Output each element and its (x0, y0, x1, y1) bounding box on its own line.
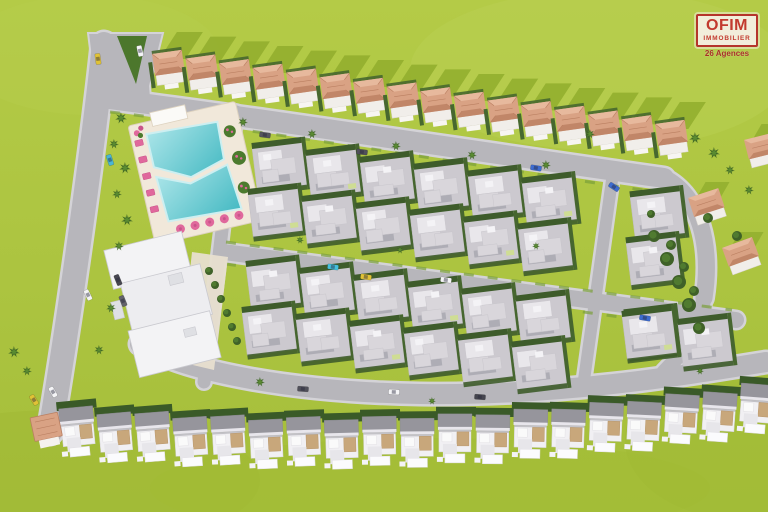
patio (257, 459, 277, 469)
roof-terrace (325, 205, 334, 212)
middle-villa-lot (511, 335, 571, 394)
shutter-panel (381, 434, 393, 448)
villa-roof (655, 213, 674, 227)
window (593, 421, 603, 430)
shutter-panel (306, 434, 319, 448)
villa-roof (379, 297, 398, 311)
villa-roof (252, 333, 269, 347)
planter (287, 460, 293, 465)
middle-villa-lot (409, 203, 469, 262)
roof-terrace (485, 181, 494, 188)
window (480, 434, 490, 443)
villa-roof (691, 346, 712, 358)
patio (670, 434, 690, 444)
villa-roof (262, 169, 279, 183)
villa-roof (315, 223, 336, 235)
planter (437, 457, 443, 462)
car-windshield (263, 133, 267, 137)
roof-terrace (473, 299, 482, 306)
window (555, 428, 565, 437)
shutter-panel (155, 429, 168, 444)
patio (295, 457, 315, 467)
villa-shadow (439, 430, 471, 432)
villa-roof (541, 318, 560, 332)
roof-terrace (415, 338, 424, 345)
villa-roof (493, 193, 512, 207)
logo-box: OFIM IMMOBILIER (696, 14, 758, 47)
garden-accent (348, 183, 357, 189)
shutter-panel (419, 436, 431, 450)
planter (324, 463, 330, 468)
window (366, 435, 376, 444)
tree (648, 230, 660, 242)
middle-villa-lot (403, 321, 463, 380)
car (388, 389, 399, 395)
roof-terrace (639, 321, 648, 328)
roof-terrace (323, 160, 332, 167)
villa-roof (438, 414, 472, 429)
roof-terrace (263, 154, 272, 161)
shutter-panel (532, 427, 544, 441)
window (64, 427, 75, 437)
tree (672, 275, 686, 289)
window (140, 432, 151, 442)
roof-terrace (265, 199, 274, 206)
logo-brand-text: OFIM (699, 18, 755, 34)
villa-roof (373, 184, 394, 196)
roof-terrace (529, 234, 538, 241)
planter (512, 452, 518, 457)
car-windshield (331, 265, 335, 269)
tree (228, 323, 236, 331)
shutter-panel (495, 433, 507, 447)
planter (137, 456, 143, 461)
roof-terrace (649, 247, 658, 254)
shutter-panel (607, 421, 620, 435)
roof-terrace (533, 306, 542, 313)
garden-accent (564, 211, 573, 217)
tree (679, 262, 689, 272)
tree (666, 240, 676, 250)
tree (703, 213, 713, 223)
window (329, 439, 339, 448)
window (102, 432, 113, 442)
tree (211, 281, 219, 289)
shutter-panel (683, 413, 696, 428)
brand-logo: OFIM IMMOBILIER 26 Agences (696, 14, 758, 58)
planter (62, 451, 68, 457)
window (178, 437, 189, 447)
car-windshield (360, 150, 364, 154)
villa-roof (472, 315, 489, 329)
villa-roof (366, 229, 383, 243)
window (291, 436, 301, 445)
logo-agencies-text: 26 Agences (696, 49, 758, 58)
tree (682, 298, 696, 312)
planter (737, 426, 743, 431)
patio (595, 443, 615, 453)
middle-villa-lot (349, 314, 409, 373)
car-windshield (96, 57, 100, 61)
roof-terrace (535, 351, 544, 358)
car-windshield (444, 278, 448, 282)
shutter-panel (720, 411, 733, 426)
garden-accent (392, 354, 401, 360)
patio (69, 446, 90, 457)
shutter-panel (230, 433, 243, 448)
villa-roof (321, 336, 340, 350)
roof-terrace (371, 285, 380, 292)
shutter-panel (645, 420, 658, 435)
car-windshield (364, 275, 368, 279)
roof-terrace (383, 166, 392, 173)
middle-villa-lot (241, 300, 301, 359)
patio (482, 455, 502, 464)
shutter-panel (457, 432, 469, 446)
villa-roof (424, 190, 441, 204)
middle-villa-lot (301, 189, 361, 248)
villa-roof (528, 250, 545, 264)
car-windshield (643, 316, 648, 320)
roof-terrace (475, 345, 484, 352)
patio (332, 460, 352, 470)
window (404, 437, 414, 446)
patio (632, 441, 652, 451)
villa-roof (414, 354, 431, 368)
shutter-panel (758, 402, 768, 417)
villa-roof (273, 211, 292, 225)
window (668, 413, 679, 423)
roof-terrace (431, 291, 440, 298)
car-windshield (478, 395, 482, 399)
villa-roof (476, 415, 510, 430)
car-windshield (392, 390, 396, 394)
roof-terrace (311, 279, 320, 286)
window (743, 402, 754, 412)
tree (693, 322, 705, 334)
villa-roof (639, 265, 660, 277)
roof-terrace (373, 330, 382, 337)
car (474, 394, 485, 400)
patio (745, 423, 766, 434)
tree (217, 295, 225, 303)
villa-roof (477, 244, 498, 256)
middle-villa-lot (295, 307, 355, 366)
car (297, 386, 308, 392)
roof-terrace (427, 220, 436, 227)
window (517, 428, 527, 437)
shutter-panel (79, 424, 92, 439)
roof-terrace (253, 318, 262, 325)
window (630, 420, 640, 429)
tree (689, 286, 699, 296)
tree (732, 231, 742, 241)
villa-roof (525, 369, 546, 381)
roof-terrace (545, 187, 554, 194)
car-windshield (534, 166, 539, 170)
planter (549, 452, 555, 457)
planter (699, 434, 705, 439)
tree (660, 252, 674, 266)
planter (212, 459, 218, 464)
patio (707, 432, 728, 442)
planter (624, 444, 630, 449)
villa-roof (438, 427, 472, 430)
roof-terrace (313, 324, 322, 331)
shutter-panel (117, 430, 130, 445)
patio (145, 452, 166, 463)
window (442, 433, 452, 442)
planter (399, 461, 405, 466)
roof-terrace (647, 201, 656, 208)
site-plan-svg (0, 0, 768, 512)
middle-villa-lot (355, 196, 415, 255)
middle-villa-lot (463, 210, 523, 269)
window (215, 435, 226, 445)
patio (520, 449, 540, 458)
villa-roof (310, 294, 327, 308)
patio (557, 449, 577, 459)
planter (662, 436, 668, 441)
window (253, 439, 263, 448)
middle-villa-lot (247, 182, 307, 241)
villa-roof (400, 418, 434, 433)
villa-roof (483, 357, 502, 371)
planter (174, 461, 180, 466)
patio (445, 454, 465, 463)
patio (182, 457, 203, 467)
planter (587, 445, 593, 450)
villa-shadow (477, 431, 509, 433)
villa-roof (647, 333, 666, 347)
planter (249, 463, 255, 468)
middle-villa-lot (457, 328, 517, 387)
site-plan-render: OFIM IMMOBILIER 26 Agences (0, 0, 768, 512)
planter (474, 458, 480, 463)
middle-villa-lot (677, 312, 737, 371)
villa-roof (435, 232, 454, 246)
tree (647, 210, 655, 218)
villa-roof (535, 205, 556, 217)
roof-terrace (269, 270, 278, 277)
logo-subtitle-text: IMMOBILIER (699, 35, 755, 42)
garden-accent (290, 222, 299, 228)
patio (407, 458, 427, 467)
shutter-panel (344, 438, 356, 452)
middle-villa-lot (517, 217, 577, 276)
patio (220, 455, 240, 465)
shutter-panel (570, 427, 582, 441)
patio (370, 456, 390, 465)
window (706, 411, 717, 421)
roof-terrace (367, 214, 376, 221)
shutter-panel (268, 437, 281, 452)
villa-roof (259, 288, 280, 300)
planter (362, 460, 368, 465)
planter (99, 457, 105, 462)
villa-roof (331, 172, 350, 186)
tree (205, 267, 213, 275)
garden-accent (506, 250, 515, 256)
car-windshield (301, 387, 305, 391)
villa-roof (421, 309, 442, 321)
roof-terrace (425, 174, 434, 181)
garden-accent (450, 315, 459, 321)
tree (233, 337, 241, 345)
villa-roof (363, 348, 384, 360)
patio (107, 452, 128, 463)
middle-villa-lot (621, 304, 681, 363)
roof-terrace (487, 226, 496, 233)
tree (223, 309, 231, 317)
garden-accent (664, 344, 673, 350)
shutter-panel (193, 434, 206, 449)
